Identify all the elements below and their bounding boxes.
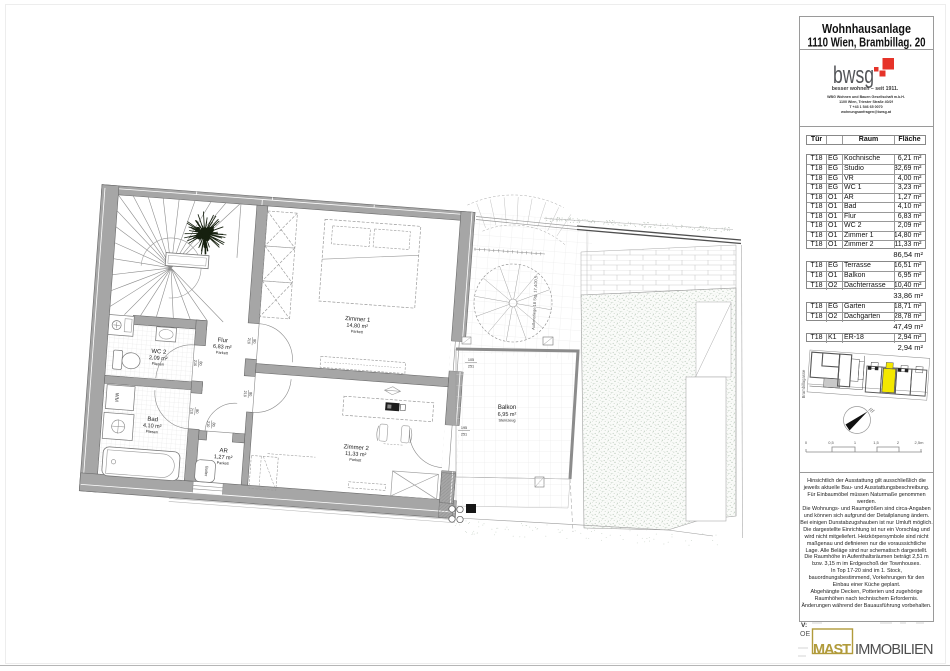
svg-text:210: 210 [243, 390, 247, 397]
svg-text:IMMOBILIEN: IMMOBILIEN [855, 642, 934, 658]
svg-text:MAST: MAST [813, 642, 851, 658]
svg-text:Parkett: Parkett [349, 458, 362, 463]
svg-text:210: 210 [193, 360, 197, 367]
svg-text:0: 0 [805, 440, 808, 445]
svg-text:251: 251 [468, 365, 474, 369]
svg-text:1: 1 [854, 440, 857, 445]
svg-text:1110 Wien, Brambillag. 20: 1110 Wien, Brambillag. 20 [808, 35, 926, 50]
svg-text:210: 210 [189, 408, 193, 415]
svg-text:Brambillagasse: Brambillagasse [801, 369, 806, 398]
svg-text:wohnungsanfragen@bwsg.at: wohnungsanfragen@bwsg.at [840, 110, 892, 114]
svg-text:Balkon: Balkon [498, 405, 516, 411]
svg-text:Steinzeug: Steinzeug [499, 419, 516, 423]
svg-text:bwsg: bwsg [833, 62, 874, 89]
svg-text:0,5: 0,5 [828, 440, 834, 445]
svg-text:105: 105 [468, 358, 474, 362]
svg-text:2: 2 [897, 440, 900, 445]
svg-text:80: 80 [211, 422, 215, 427]
svg-text:6,95 m²: 6,95 m² [498, 412, 517, 418]
svg-text:T +43 1 546 65 0070: T +43 1 546 65 0070 [849, 105, 882, 109]
svg-text:WBG Wohnen und Bauen Gesellsch: WBG Wohnen und Bauen Gesellschaft m.b.H. [827, 95, 905, 99]
svg-text:Parkett: Parkett [217, 461, 230, 466]
svg-text:195: 195 [461, 426, 467, 430]
svg-text:210: 210 [247, 338, 251, 345]
svg-text:80: 80 [248, 392, 252, 397]
svg-text:80: 80 [198, 361, 202, 366]
svg-text:1,5: 1,5 [873, 440, 879, 445]
svg-text:251: 251 [461, 433, 467, 437]
svg-text:1100 Wien, Triester Straße 40/: 1100 Wien, Triester Straße 40/2f [839, 100, 894, 104]
svg-text:WM: WM [113, 393, 120, 402]
svg-text:Boiler: Boiler [204, 466, 210, 477]
svg-text:210: 210 [206, 421, 210, 428]
svg-text:Parkett: Parkett [216, 351, 229, 356]
svg-text:Parkett: Parkett [351, 329, 364, 334]
svg-text:2,5m: 2,5m [915, 440, 925, 445]
svg-text:80: 80 [195, 409, 199, 414]
svg-text:besser wohnen – seit 1911.: besser wohnen – seit 1911. [832, 86, 899, 92]
svg-text:80: 80 [252, 339, 256, 344]
